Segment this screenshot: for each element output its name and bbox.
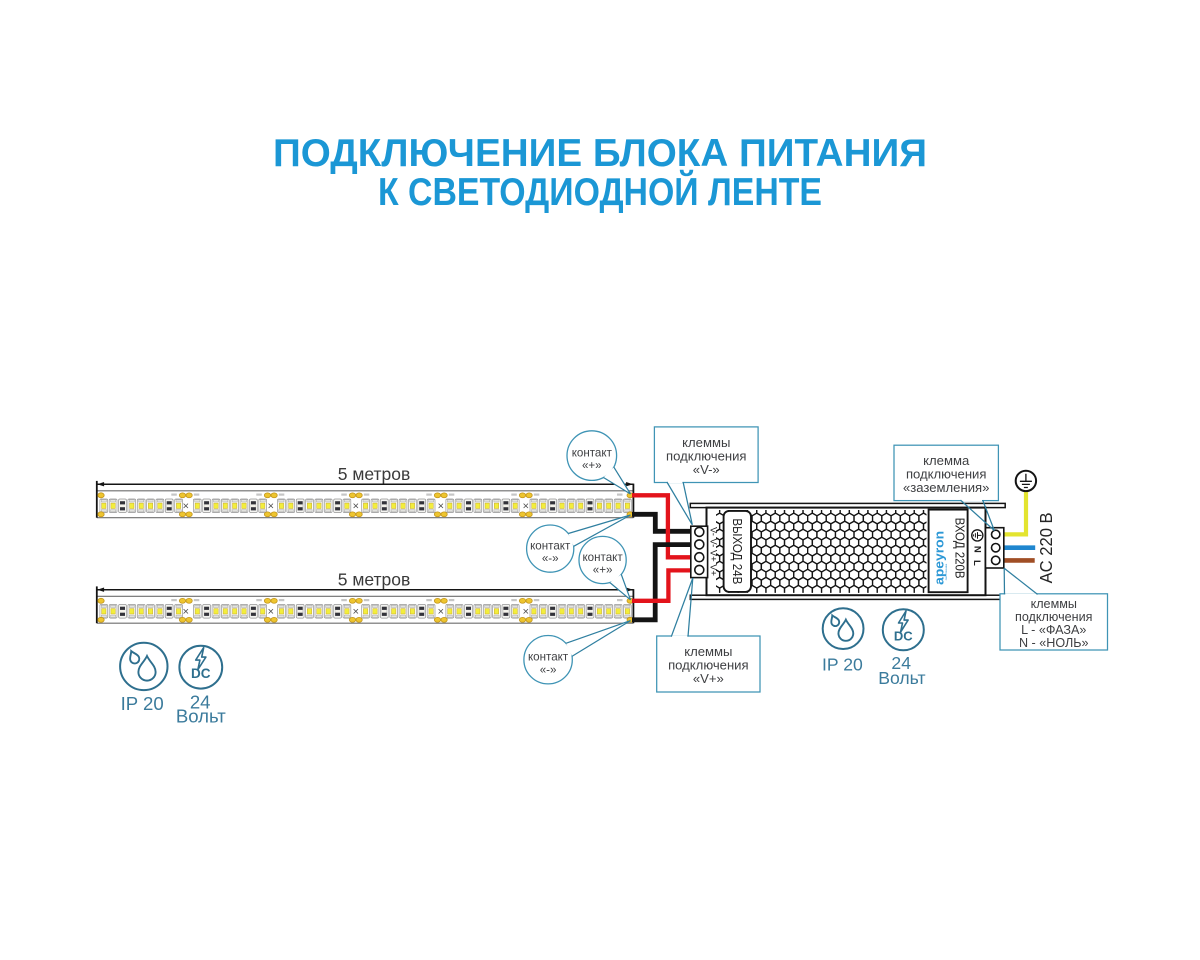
svg-text:IP 20: IP 20 [822, 655, 863, 675]
svg-text:5 метров: 5 метров [338, 570, 411, 590]
svg-text:apeyron: apeyron [931, 531, 946, 585]
svg-text:«+»: «+» [593, 564, 613, 577]
svg-text:контакт: контакт [528, 651, 569, 664]
svg-text:5 метров: 5 метров [338, 464, 411, 484]
svg-text:«-»: «-» [542, 552, 559, 565]
svg-text:AC 220 В: AC 220 В [1036, 512, 1056, 583]
svg-text:DC: DC [191, 666, 211, 681]
svg-text:N: N [971, 546, 982, 553]
svg-text:контакт: контакт [572, 446, 613, 459]
svg-text:L - «ФАЗА»: L - «ФАЗА» [1021, 623, 1086, 637]
svg-text:светотехника: светотехника [945, 563, 948, 580]
svg-text:К СВЕТОДИОДНОЙ ЛЕНТЕ: К СВЕТОДИОДНОЙ ЛЕНТЕ [378, 169, 822, 214]
svg-text:Вольт: Вольт [176, 706, 226, 727]
svg-text:«заземления»: «заземления» [903, 480, 989, 495]
svg-text:L: L [971, 560, 982, 566]
svg-text:ВЫХОД 24В: ВЫХОД 24В [730, 518, 745, 584]
svg-text:«-»: «-» [540, 663, 557, 676]
svg-text:контакт: контакт [582, 551, 623, 564]
svg-text:ПОДКЛЮЧЕНИЕ БЛОКА ПИТАНИЯ: ПОДКЛЮЧЕНИЕ БЛОКА ПИТАНИЯ [273, 132, 927, 175]
svg-text:контакт: контакт [530, 539, 571, 552]
svg-text:«V+»: «V+» [693, 671, 724, 686]
svg-text:N - «НОЛЬ»: N - «НОЛЬ» [1019, 636, 1089, 650]
svg-text:ВХОД 220В: ВХОД 220В [952, 518, 967, 579]
svg-text:«V-»: «V-» [693, 462, 720, 477]
svg-text:V- V- V+ V+: V- V- V+ V+ [707, 527, 718, 576]
svg-text:подключения: подключения [1015, 610, 1092, 624]
svg-text:IP 20: IP 20 [121, 693, 164, 714]
svg-text:Вольт: Вольт [878, 668, 925, 688]
svg-text:DC: DC [894, 628, 913, 643]
svg-text:«+»: «+» [582, 459, 602, 472]
svg-text:клеммы: клеммы [1031, 597, 1077, 611]
